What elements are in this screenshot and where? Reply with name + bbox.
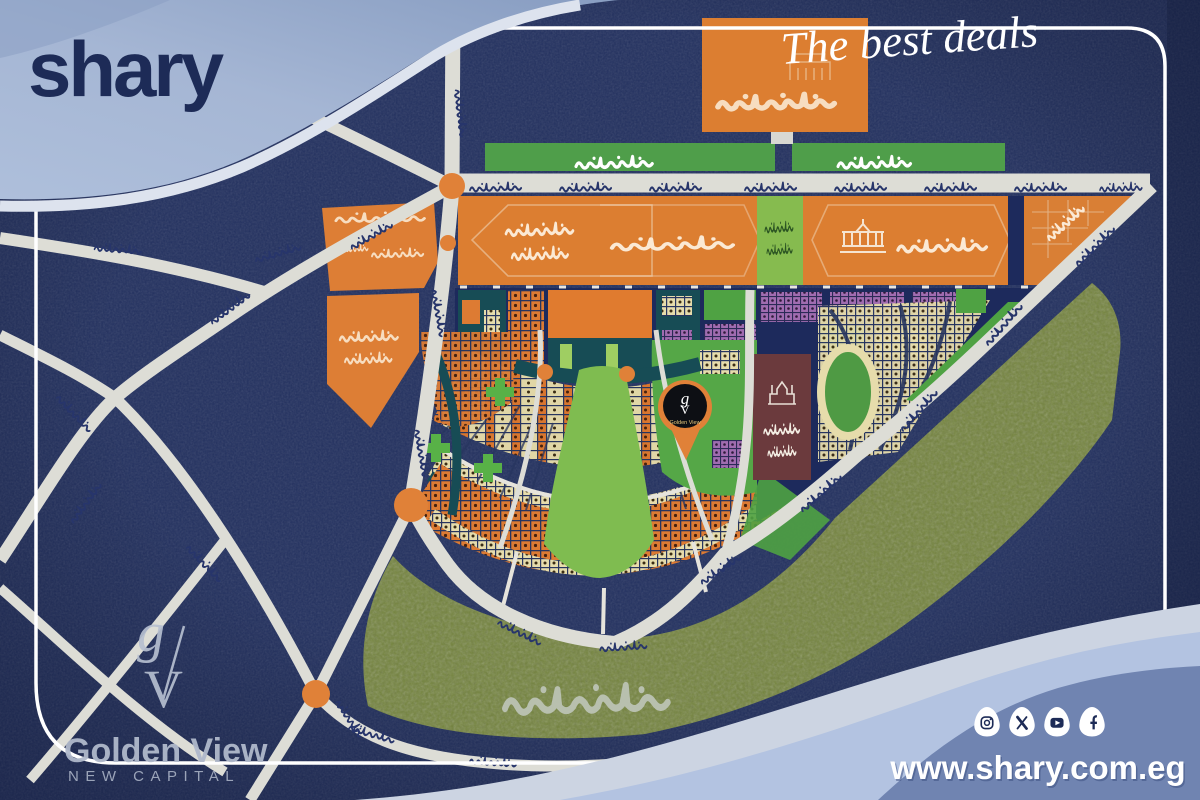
svg-text:www.shary.com.eg: www.shary.com.eg — [889, 749, 1185, 786]
svg-text:NEW CAPITAL: NEW CAPITAL — [68, 768, 240, 785]
svg-text:V: V — [680, 402, 690, 417]
svg-text:shary: shary — [28, 25, 224, 113]
svg-text:V: V — [144, 659, 183, 719]
svg-text:g: g — [137, 602, 165, 664]
svg-text:Golden View: Golden View — [64, 732, 268, 770]
svg-text:Golden View: Golden View — [669, 420, 700, 426]
